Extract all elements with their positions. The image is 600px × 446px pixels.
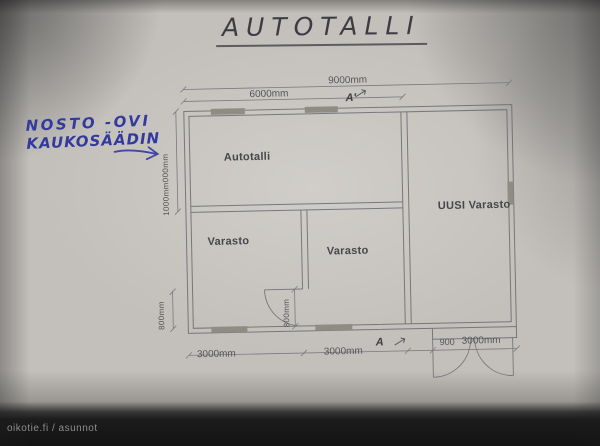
page-title: AUTOTALLI (216, 11, 427, 47)
handwritten-note: NOSTO -OVI KAUKOSÄÄDIN (25, 111, 160, 153)
floor-plan-drawing: Autotalli Varasto Varasto UUSI Varasto 9… (0, 0, 600, 446)
dim-line-left-vertical (176, 112, 178, 212)
walls (184, 105, 517, 345)
section-marker-a-prime: A' (345, 92, 356, 104)
dim-label-3000-mid: 3000mm (324, 346, 363, 358)
dim-label-3000-left: 3000mm (197, 348, 236, 360)
dim-label-800-mid: 800mm (281, 285, 291, 327)
watermark: oikotie.fi / asunnot (7, 423, 98, 434)
dim-label-6000: 6000mm (249, 88, 288, 100)
window-top-right (305, 106, 338, 113)
dimension-lines (165, 80, 520, 359)
room-label-varasto-left: Varasto (207, 235, 249, 248)
room-label-varasto-right: Varasto (327, 245, 369, 258)
section-marker-arrows (355, 89, 404, 346)
double-door-right-leaf (513, 338, 514, 376)
door-swings (265, 285, 514, 381)
dim-label-9000: 9000mm (328, 75, 367, 87)
window-bottom-mid (315, 324, 352, 331)
outer-wall-outline (184, 105, 517, 334)
room-label-autotalli: Autotalli (224, 151, 271, 164)
note-arrow-icon (115, 147, 158, 160)
windows (207, 103, 517, 333)
autotalli-varasto-wall (191, 202, 403, 206)
room-label-uusi-varasto: UUSI Varasto (438, 199, 511, 213)
floor-plan-photo: Autotalli Varasto Varasto UUSI Varasto 9… (0, 0, 600, 446)
window-top-left (211, 108, 245, 115)
double-door-left-leaf (433, 339, 434, 377)
plan-linework (0, 0, 600, 446)
dim-label-800-left: 800mm (156, 288, 166, 330)
outer-wall-inner-line (189, 110, 511, 329)
dim-line-6000 (184, 97, 403, 102)
dim-line-800-mid (295, 289, 296, 326)
dim-label-3000-right: 3000mm (462, 335, 501, 347)
dim-label-900: 900 (440, 337, 455, 347)
window-bottom-left (211, 326, 247, 333)
varasto-divider-wall (301, 210, 303, 289)
dim-line-800-left (173, 292, 174, 329)
uusi-partition-wall (401, 112, 405, 324)
section-marker-a: A (376, 336, 384, 348)
